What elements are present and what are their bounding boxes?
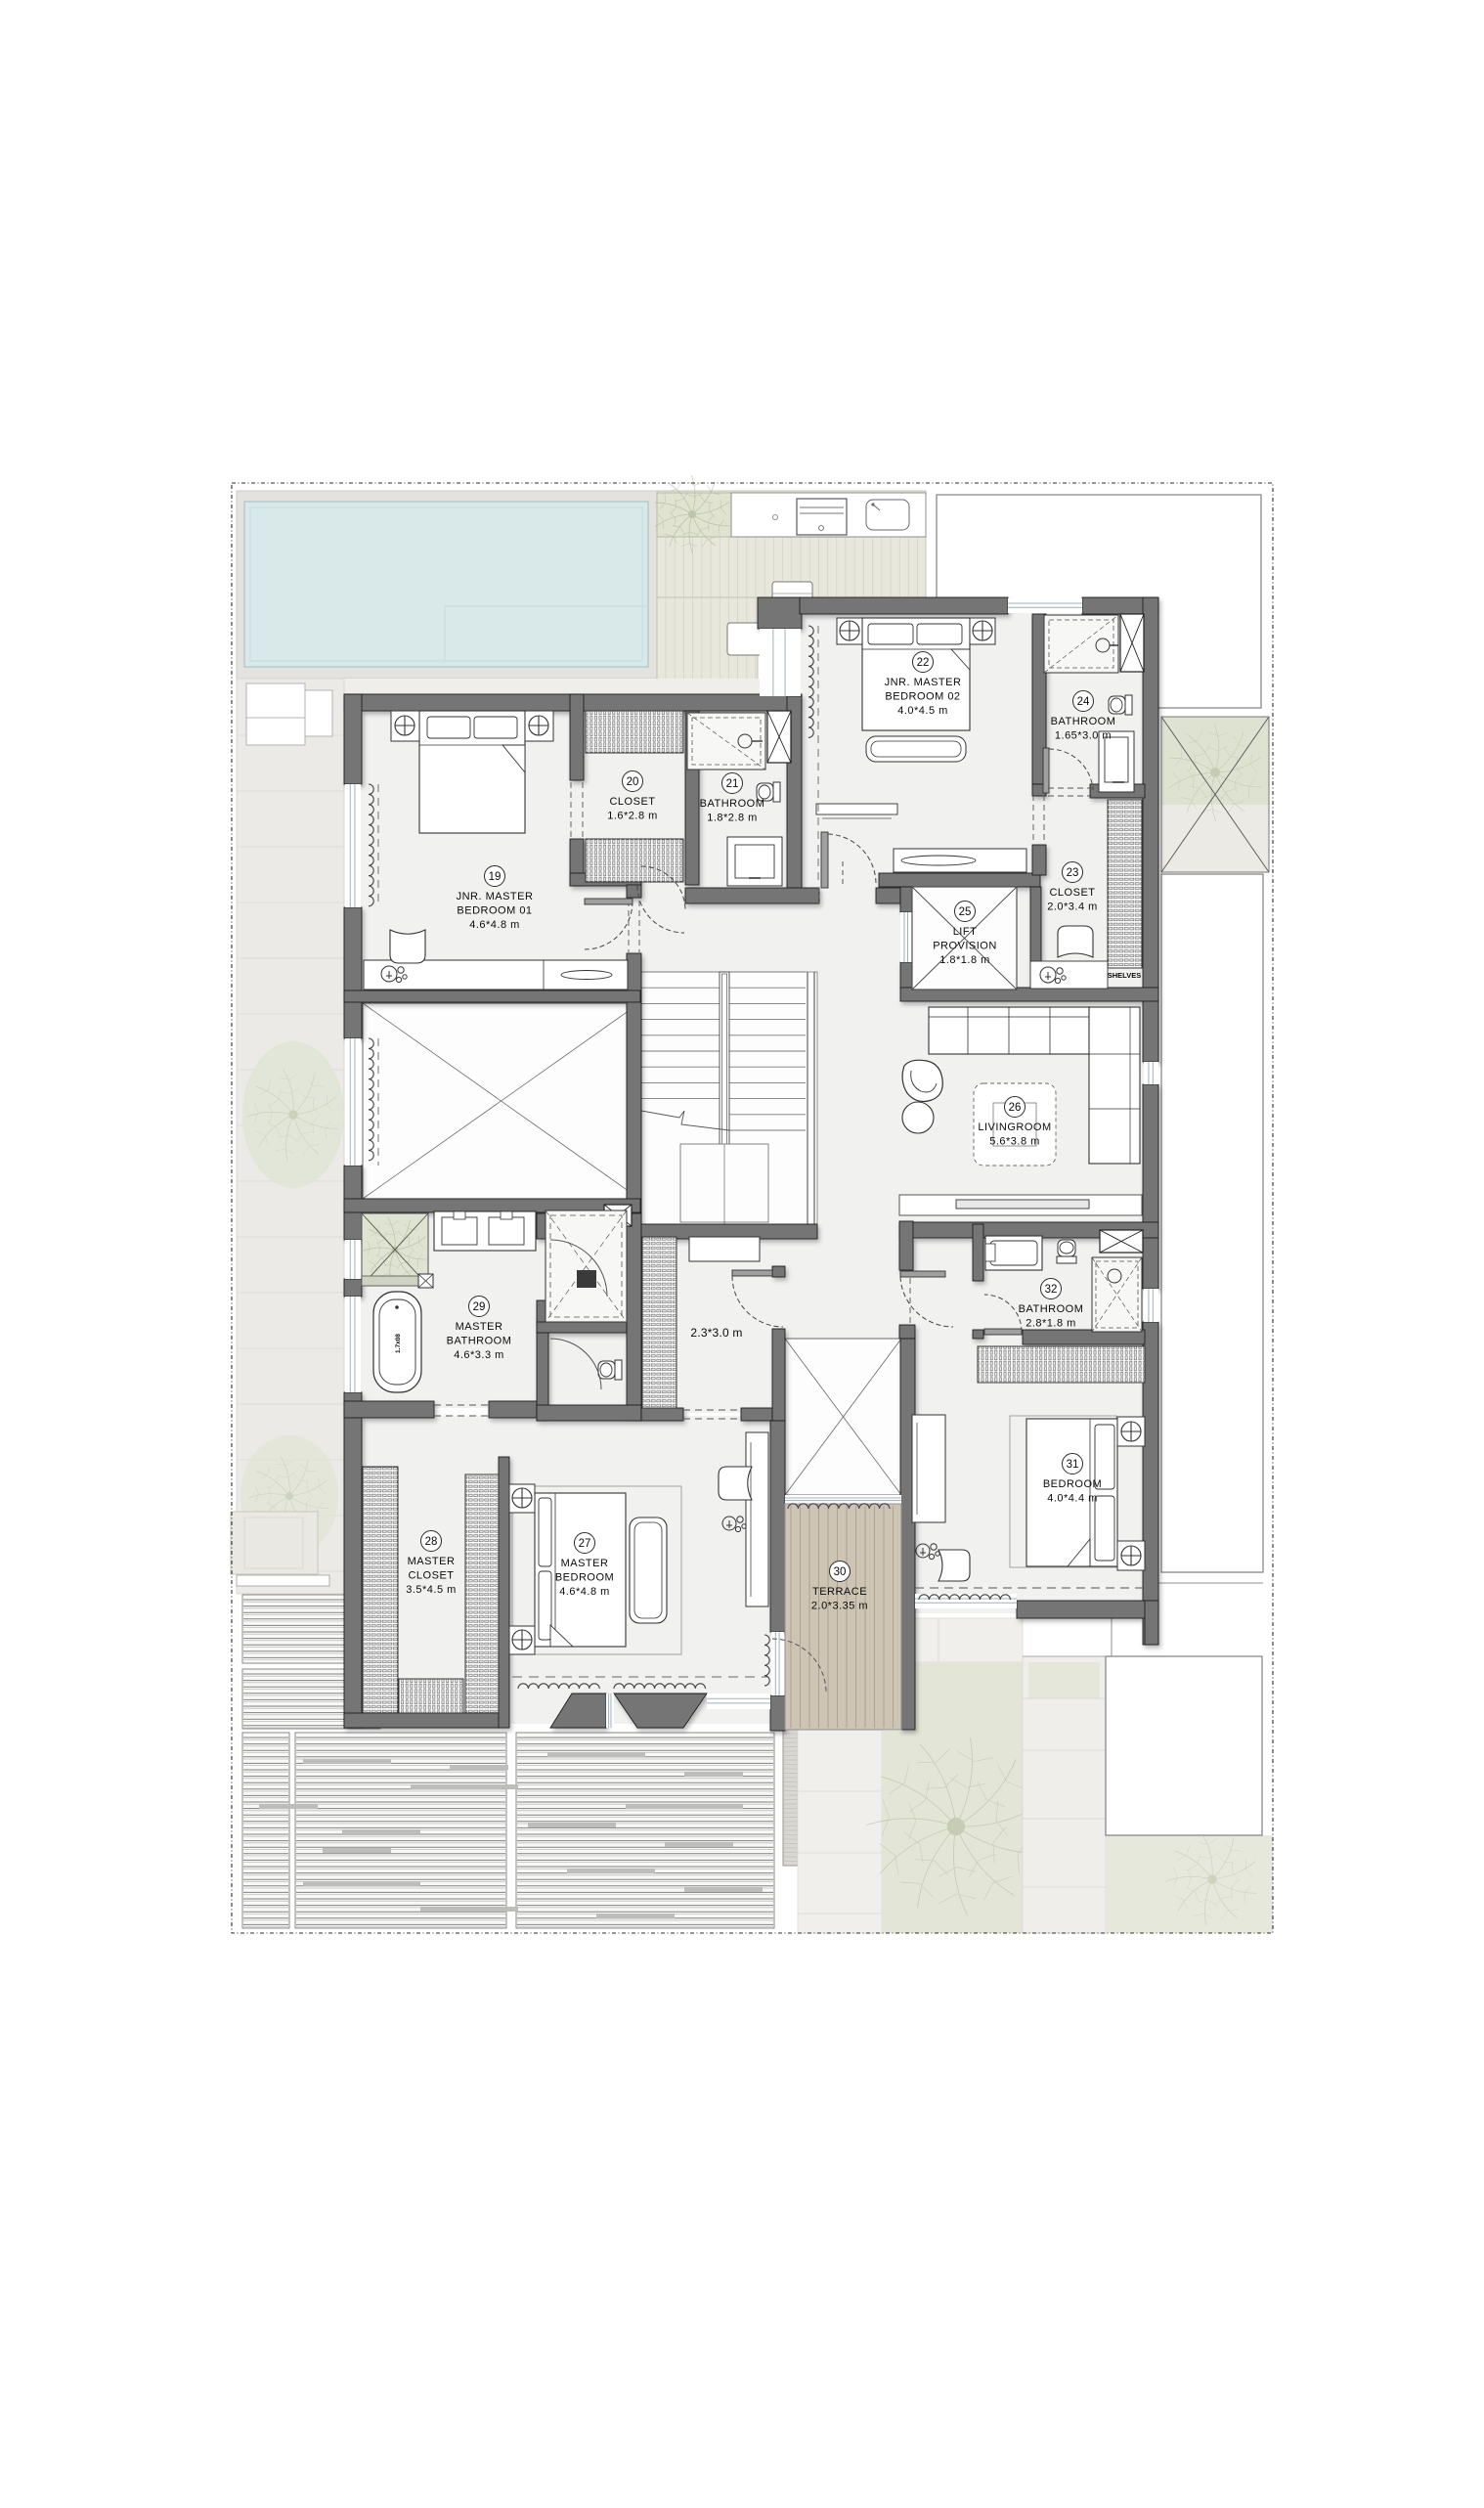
svg-text:BATHROOM: BATHROOM <box>1051 716 1116 727</box>
svg-text:JNR. MASTER: JNR. MASTER <box>457 891 534 902</box>
svg-text:25: 25 <box>959 906 972 918</box>
svg-text:22: 22 <box>917 657 930 669</box>
svg-text:27: 27 <box>579 1538 591 1550</box>
svg-text:MASTER: MASTER <box>408 1556 456 1567</box>
svg-text:BEDROOM: BEDROOM <box>1043 1478 1102 1490</box>
svg-text:1.7x08: 1.7x08 <box>395 1334 402 1353</box>
svg-text:PROVISION: PROVISION <box>933 941 997 952</box>
svg-text:MASTER: MASTER <box>456 1321 503 1333</box>
svg-text:TERRACE: TERRACE <box>812 1586 867 1598</box>
svg-text:1.8*2.8 m: 1.8*2.8 m <box>707 813 758 824</box>
svg-text:CLOSET: CLOSET <box>408 1570 454 1582</box>
svg-text:1.65*3.0 m: 1.65*3.0 m <box>1055 730 1112 742</box>
svg-text:21: 21 <box>726 778 739 790</box>
svg-text:BEDROOM: BEDROOM <box>555 1572 614 1584</box>
svg-text:LIVINGROOM: LIVINGROOM <box>978 1122 1051 1133</box>
svg-text:31: 31 <box>1067 1459 1079 1471</box>
svg-text:BEDROOM 01: BEDROOM 01 <box>457 905 532 917</box>
svg-text:19: 19 <box>489 871 502 883</box>
svg-text:29: 29 <box>473 1301 486 1313</box>
svg-text:4.6*3.3 m: 4.6*3.3 m <box>454 1349 504 1361</box>
svg-text:2.0*3.4 m: 2.0*3.4 m <box>1047 902 1098 913</box>
svg-text:LIFT: LIFT <box>953 926 978 938</box>
svg-text:2.8*1.8 m: 2.8*1.8 m <box>1026 1318 1076 1330</box>
svg-text:JNR. MASTER: JNR. MASTER <box>885 677 962 688</box>
svg-text:BEDROOM 02: BEDROOM 02 <box>885 691 960 703</box>
svg-text:SHELVES: SHELVES <box>1108 971 1141 980</box>
svg-text:4.0*4.5 m: 4.0*4.5 m <box>897 705 948 717</box>
svg-text:4.0*4.4 m: 4.0*4.4 m <box>1047 1493 1098 1505</box>
svg-text:1.8*1.8 m: 1.8*1.8 m <box>939 954 990 966</box>
svg-text:4.6*4.8 m: 4.6*4.8 m <box>469 919 520 931</box>
svg-text:BATHROOM: BATHROOM <box>447 1336 512 1347</box>
svg-text:MASTER: MASTER <box>561 1558 609 1569</box>
svg-text:BATHROOM: BATHROOM <box>700 798 765 810</box>
svg-text:CLOSET: CLOSET <box>609 796 655 808</box>
svg-text:23: 23 <box>1067 867 1079 879</box>
svg-text:BATHROOM: BATHROOM <box>1019 1303 1084 1315</box>
svg-text:28: 28 <box>425 1536 438 1548</box>
svg-text:26: 26 <box>1009 1102 1022 1114</box>
svg-text:24: 24 <box>1077 696 1090 708</box>
svg-text:32: 32 <box>1045 1284 1058 1296</box>
svg-text:20: 20 <box>627 776 639 788</box>
svg-text:30: 30 <box>834 1566 847 1578</box>
svg-text:3.5*4.5 m: 3.5*4.5 m <box>406 1584 457 1596</box>
svg-text:2.0*3.35 m: 2.0*3.35 m <box>811 1601 868 1612</box>
svg-text:5.6*3.8 m: 5.6*3.8 m <box>989 1136 1040 1148</box>
svg-text:4.6*4.8 m: 4.6*4.8 m <box>559 1586 610 1598</box>
svg-text:1.6*2.8 m: 1.6*2.8 m <box>607 811 658 822</box>
svg-text:CLOSET: CLOSET <box>1049 887 1095 899</box>
svg-text:2.3*3.0 m: 2.3*3.0 m <box>690 1326 742 1340</box>
